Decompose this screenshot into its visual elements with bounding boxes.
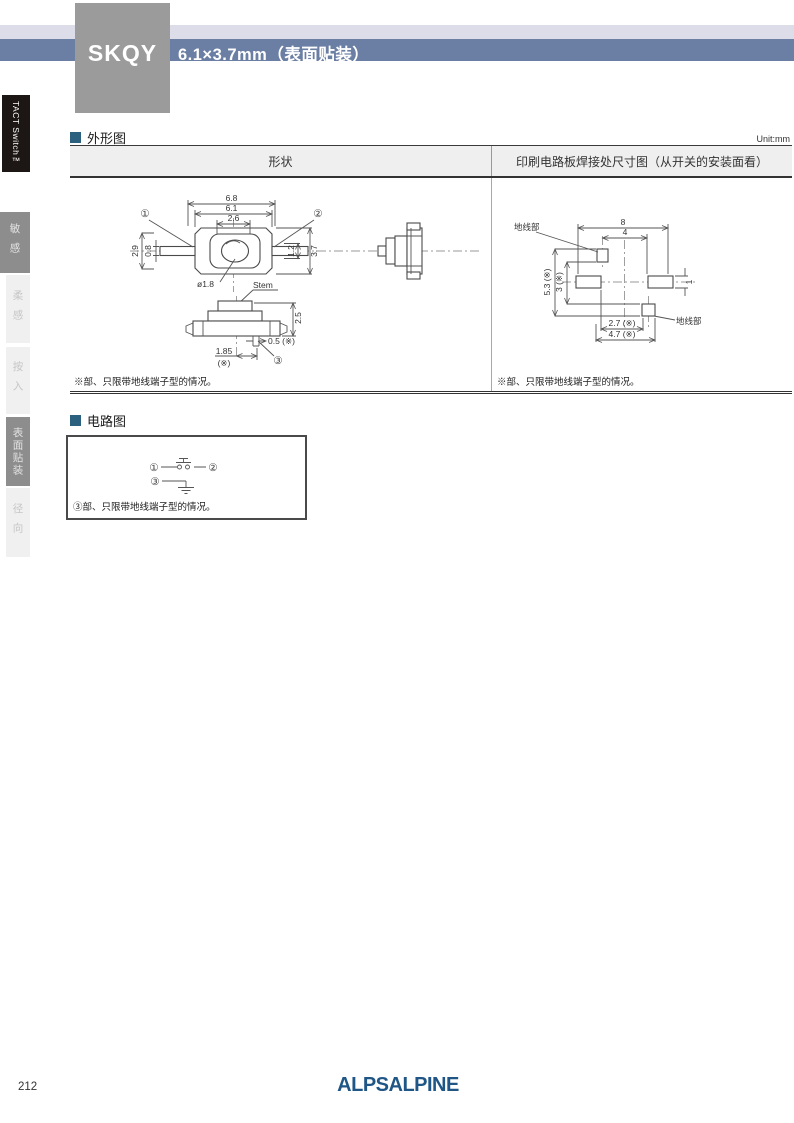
pcb-note: ※部、只限带地线端子型的情况。 bbox=[497, 374, 640, 388]
callout-1: ① bbox=[140, 208, 150, 220]
circuit-terminal-1: ① bbox=[149, 462, 159, 474]
pcb-pad-drawing: 8 4 5.3 (※) 3 (※) 1 2.7 (※) bbox=[492, 178, 792, 391]
section-marker-icon bbox=[70, 132, 81, 143]
circuit-section-title: 电路图 bbox=[70, 411, 126, 430]
circuit-diagram-box: ① ② ③ ③部、只限带地线端子型的情况。 bbox=[66, 435, 307, 520]
model-code: SKQY bbox=[75, 40, 170, 67]
dim-5-3: 5.3 (※) bbox=[542, 268, 552, 295]
pad-ground-bottom bbox=[642, 304, 655, 316]
circuit-note: ③部、只限带地线端子型的情况。 bbox=[73, 499, 216, 513]
sidebar-tab-radial: 径向 bbox=[6, 488, 30, 557]
switch-body-front-view bbox=[193, 321, 280, 336]
stem-label: Stem bbox=[253, 280, 273, 290]
page-number: 212 bbox=[18, 1081, 37, 1093]
sidebar-tab-soft: 柔感 bbox=[6, 275, 30, 343]
circuit-title-text: 电路图 bbox=[87, 411, 126, 430]
stem-top-view bbox=[222, 240, 249, 262]
sidebar-tab-label: 敏感 bbox=[8, 223, 23, 262]
col-header-pcb: 印刷电路板焊接处尺寸图（从开关的安装面看） bbox=[492, 146, 792, 176]
sidebar-tab-label: 按入 bbox=[11, 361, 26, 400]
sidebar-tab-sensitive: 敏感 bbox=[0, 212, 30, 273]
terminal-left bbox=[160, 247, 195, 256]
ground-symbol bbox=[178, 488, 194, 494]
sidebar-tab-label: 柔感 bbox=[11, 290, 26, 329]
col-header-shape: 形状 bbox=[70, 146, 492, 176]
outline-table: 形状 印刷电路板焊接处尺寸图（从开关的安装面看） bbox=[70, 145, 792, 394]
shape-note: ※部、只限带地线端子型的情况。 bbox=[74, 374, 217, 388]
series-tab: TACT Switch™ bbox=[2, 95, 30, 172]
circuit-terminal-3: ③ bbox=[150, 476, 160, 488]
logo-text: ALPSALPINE bbox=[337, 1074, 459, 1096]
sidebar-tab-push: 按入 bbox=[6, 347, 30, 414]
dim-1-85: 1.85 bbox=[216, 346, 233, 356]
dim-6-1: 6.1 bbox=[226, 203, 238, 213]
switch-contact bbox=[186, 465, 190, 469]
dim-3-7: 3.7 bbox=[309, 245, 319, 257]
pad-ground-top bbox=[597, 249, 608, 262]
model-code-box: SKQY bbox=[75, 3, 170, 113]
outline-table-header: 形状 印刷电路板焊接处尺寸图（从开关的安装面看） bbox=[70, 146, 792, 178]
side-profile-view bbox=[378, 223, 422, 279]
dim-4-7: 4.7 (※) bbox=[609, 329, 636, 339]
dim-1: 1 bbox=[684, 279, 694, 284]
alpsalpine-logo: ALPSALPINE bbox=[336, 1074, 460, 1096]
dim-4: 4 bbox=[623, 227, 628, 237]
callout-2: ② bbox=[313, 208, 323, 220]
sidebar-tab-label: 表面贴装 bbox=[11, 427, 26, 477]
circuit-terminal-2: ② bbox=[208, 462, 218, 474]
sidebar-tab-label: 径向 bbox=[11, 503, 26, 542]
catalog-page: 6.1×3.7mm（表面贴装） SKQY TACT Switch™ 敏感 柔感 … bbox=[0, 0, 794, 1123]
dim-1-85-note: (※) bbox=[218, 358, 231, 368]
outline-table-body: 6.8 6.1 2.6 ① ② 2.9 0.8 1.2 bbox=[70, 178, 792, 391]
shape-drawing: 6.8 6.1 2.6 ① ② 2.9 0.8 1.2 bbox=[70, 178, 491, 391]
dim-stem-dia: ø1.8 bbox=[197, 279, 214, 289]
switch-actuator-symbol bbox=[176, 459, 191, 463]
dim-2-5: 2.5 bbox=[293, 312, 303, 324]
dim-6-8: 6.8 bbox=[226, 193, 238, 203]
dim-2-6: 2.6 bbox=[228, 213, 240, 223]
switch-contact bbox=[178, 465, 182, 469]
dim-8: 8 bbox=[621, 217, 626, 227]
dim-3: 3 (※) bbox=[554, 272, 564, 292]
dim-2-9: 2.9 bbox=[130, 245, 140, 257]
section-marker-icon bbox=[70, 415, 81, 426]
ground-label-bottom: 地线部 bbox=[676, 316, 702, 326]
unit-label: Unit:mm bbox=[757, 134, 791, 144]
sidebar-tab-smd: 表面贴装 bbox=[6, 417, 30, 486]
product-size-title: 6.1×3.7mm（表面贴装） bbox=[178, 41, 369, 65]
stem-front-view bbox=[218, 301, 252, 311]
callout-3: ③ bbox=[273, 355, 283, 367]
ground-label-top: 地线部 bbox=[514, 222, 540, 232]
dim-0-5: 0.5 (※) bbox=[268, 336, 295, 346]
dim-0-8: 0.8 bbox=[143, 245, 153, 257]
dim-1-2: 1.2 bbox=[286, 245, 296, 257]
pad-terminal-left bbox=[576, 276, 601, 288]
dim-2-7: 2.7 (※) bbox=[609, 318, 636, 328]
pad-terminal-right bbox=[648, 276, 673, 288]
series-tab-label: TACT Switch™ bbox=[11, 101, 21, 166]
